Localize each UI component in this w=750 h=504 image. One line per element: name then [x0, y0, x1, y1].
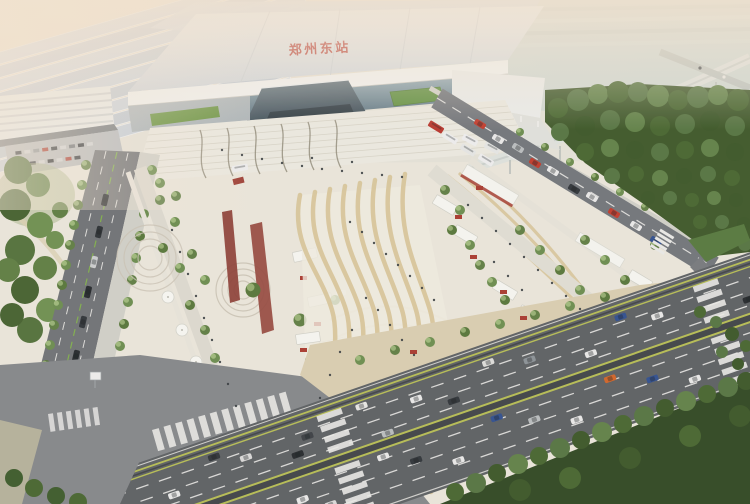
aerial-rendering: 郑州东站	[0, 0, 750, 504]
aerial-rendering-canvas: 郑州东站	[0, 0, 750, 504]
warm-tint	[0, 0, 750, 504]
